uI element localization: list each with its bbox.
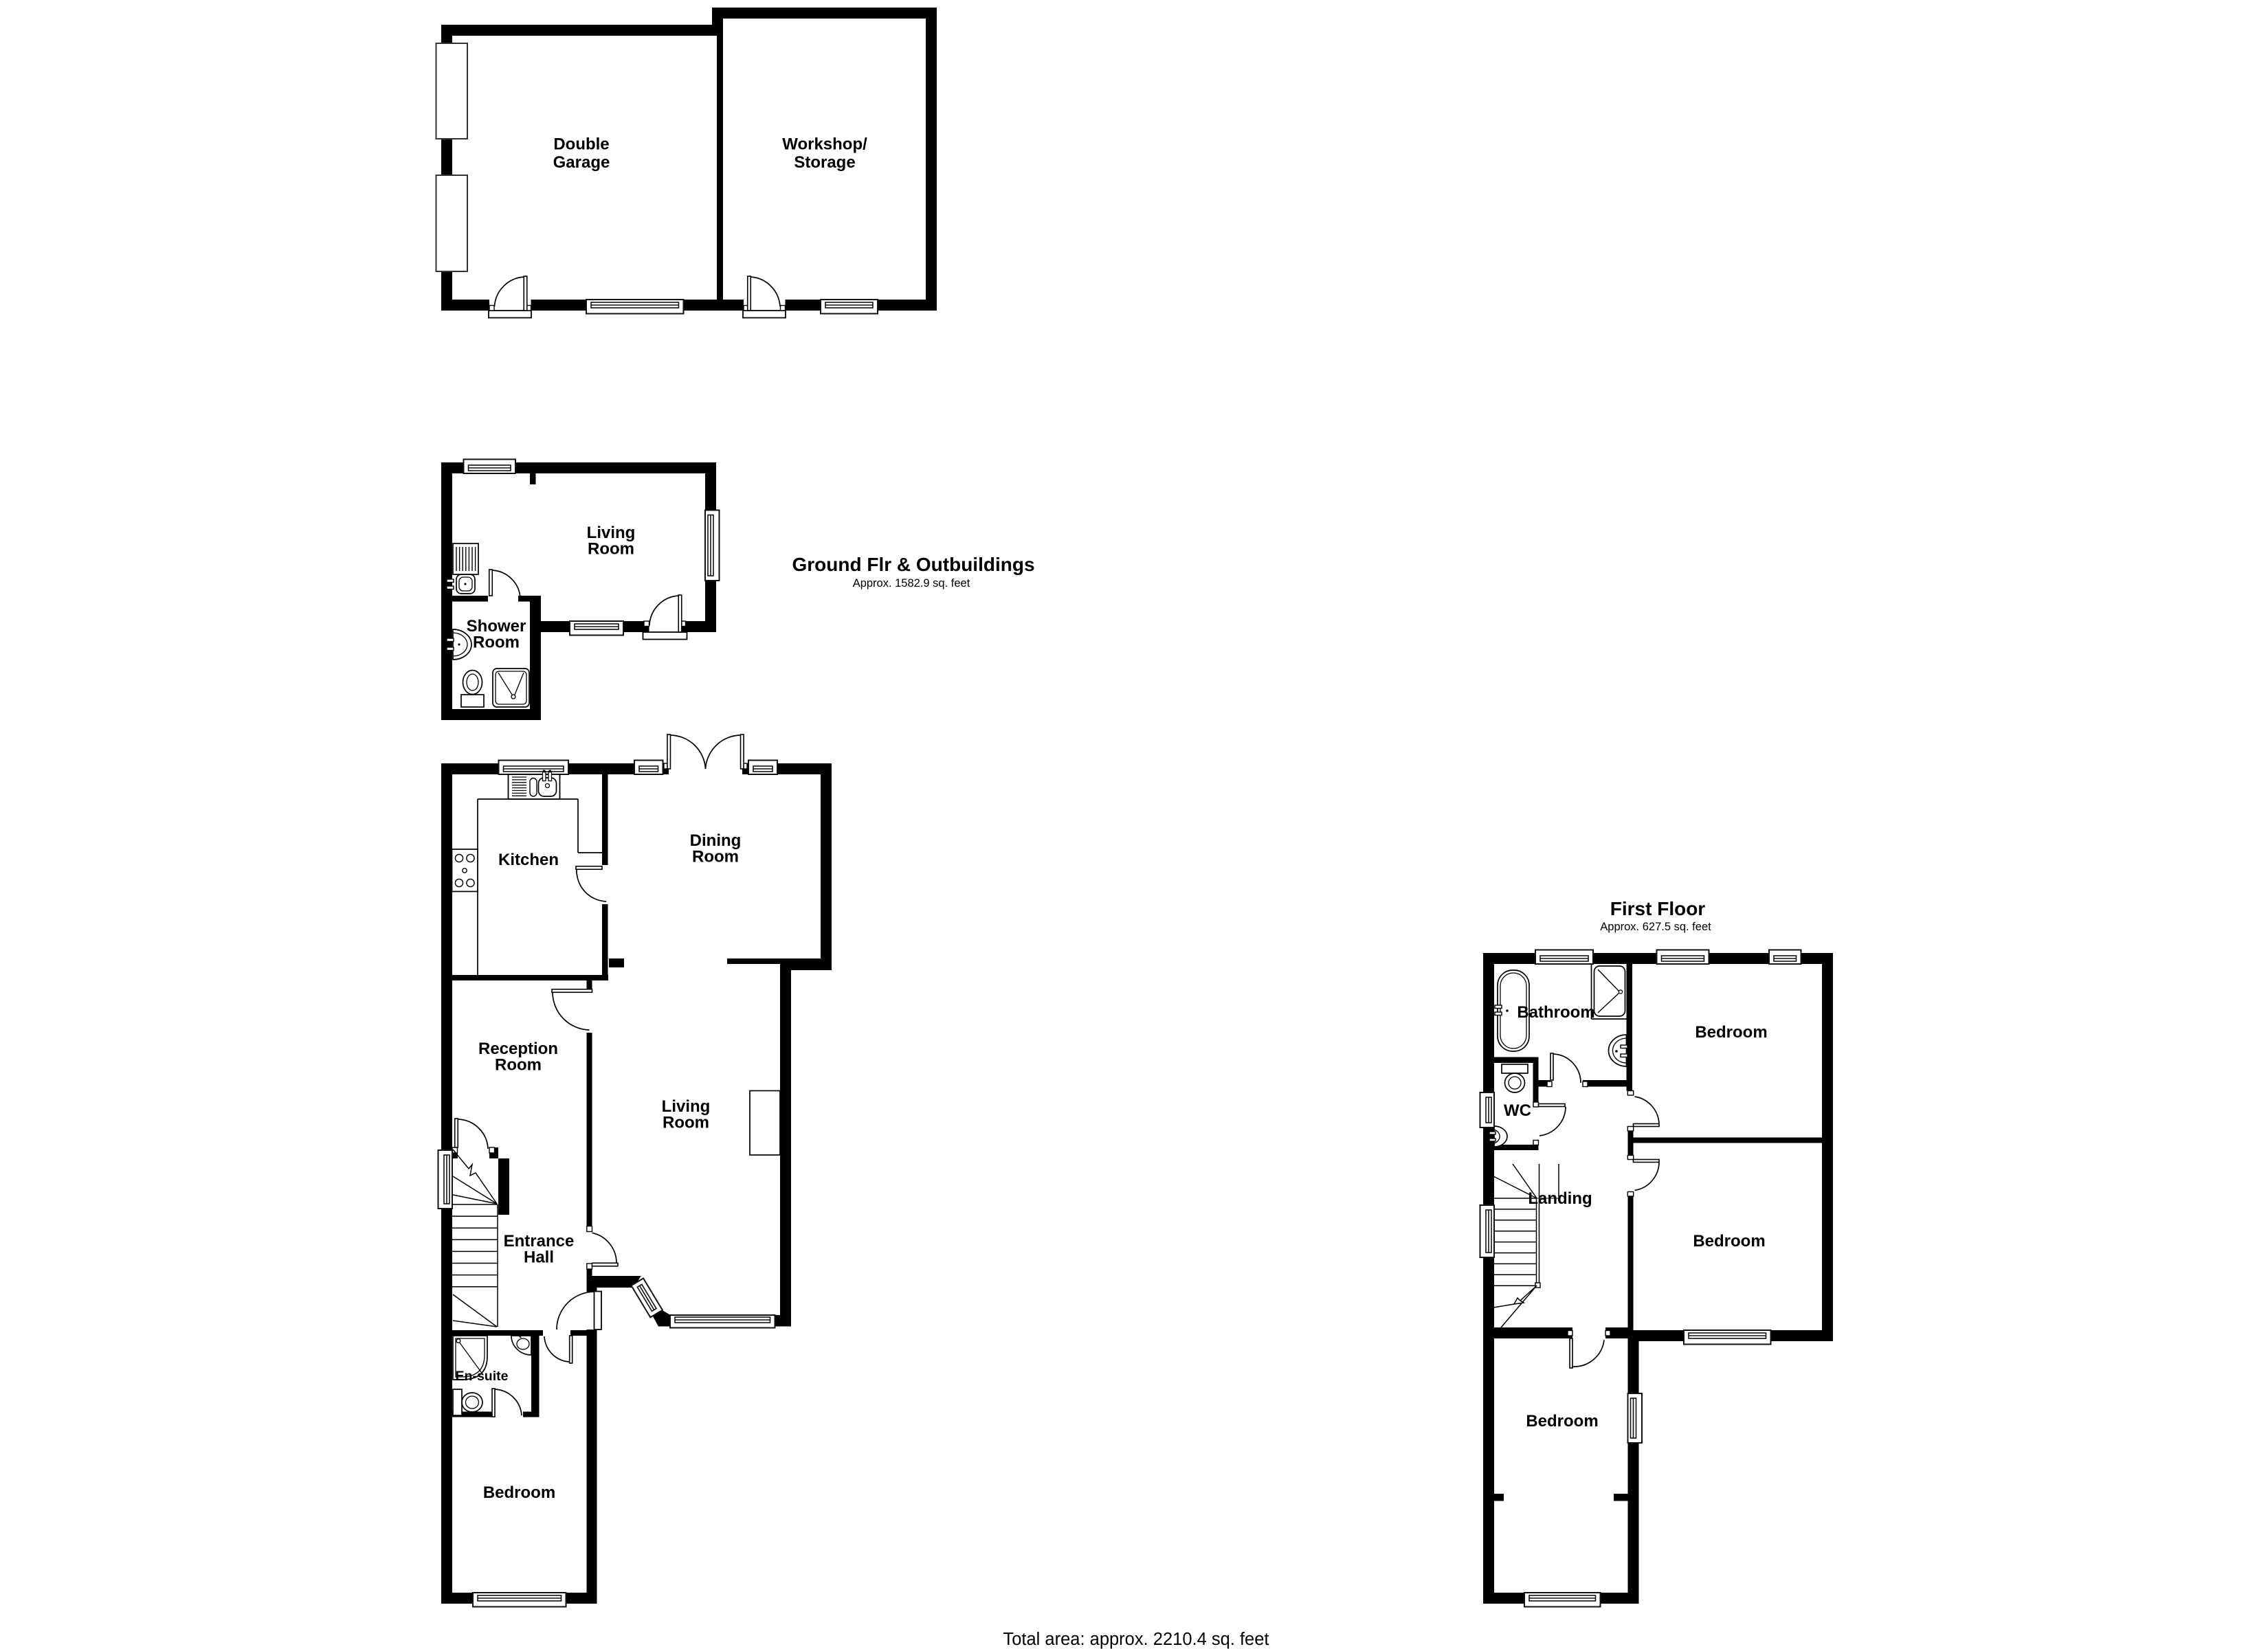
svg-text:Storage: Storage xyxy=(794,153,855,172)
svg-text:Bedroom: Bedroom xyxy=(483,1483,555,1502)
svg-text:Bedroom: Bedroom xyxy=(1693,1232,1765,1250)
svg-text:Bedroom: Bedroom xyxy=(1526,1412,1598,1431)
svg-text:Landing: Landing xyxy=(1528,1189,1592,1208)
svg-text:En-suite: En-suite xyxy=(456,1369,509,1384)
svg-text:Workshop/: Workshop/ xyxy=(782,135,867,154)
svg-text:First Floor: First Floor xyxy=(1610,898,1706,919)
svg-text:Total area: approx. 2210.4 sq.: Total area: approx. 2210.4 sq. feet xyxy=(1003,1630,1269,1649)
svg-text:Room: Room xyxy=(588,540,634,559)
svg-text:Room: Room xyxy=(473,633,520,652)
svg-text:Room: Room xyxy=(663,1114,709,1132)
svg-text:Garage: Garage xyxy=(553,153,610,172)
svg-text:WC: WC xyxy=(1504,1101,1531,1120)
svg-text:Double: Double xyxy=(553,135,609,154)
svg-text:Hall: Hall xyxy=(524,1248,554,1267)
svg-text:Bedroom: Bedroom xyxy=(1695,1023,1767,1042)
svg-text:Room: Room xyxy=(692,848,739,866)
svg-text:Approx. 1582.9 sq. feet: Approx. 1582.9 sq. feet xyxy=(853,577,970,590)
svg-text:Bathroom: Bathroom xyxy=(1517,1003,1594,1022)
svg-text:Approx. 627.5 sq. feet: Approx. 627.5 sq. feet xyxy=(1600,921,1711,933)
svg-text:Kitchen: Kitchen xyxy=(498,851,559,869)
svg-text:Ground Flr & Outbuildings: Ground Flr & Outbuildings xyxy=(792,554,1034,575)
svg-text:Room: Room xyxy=(495,1056,542,1075)
